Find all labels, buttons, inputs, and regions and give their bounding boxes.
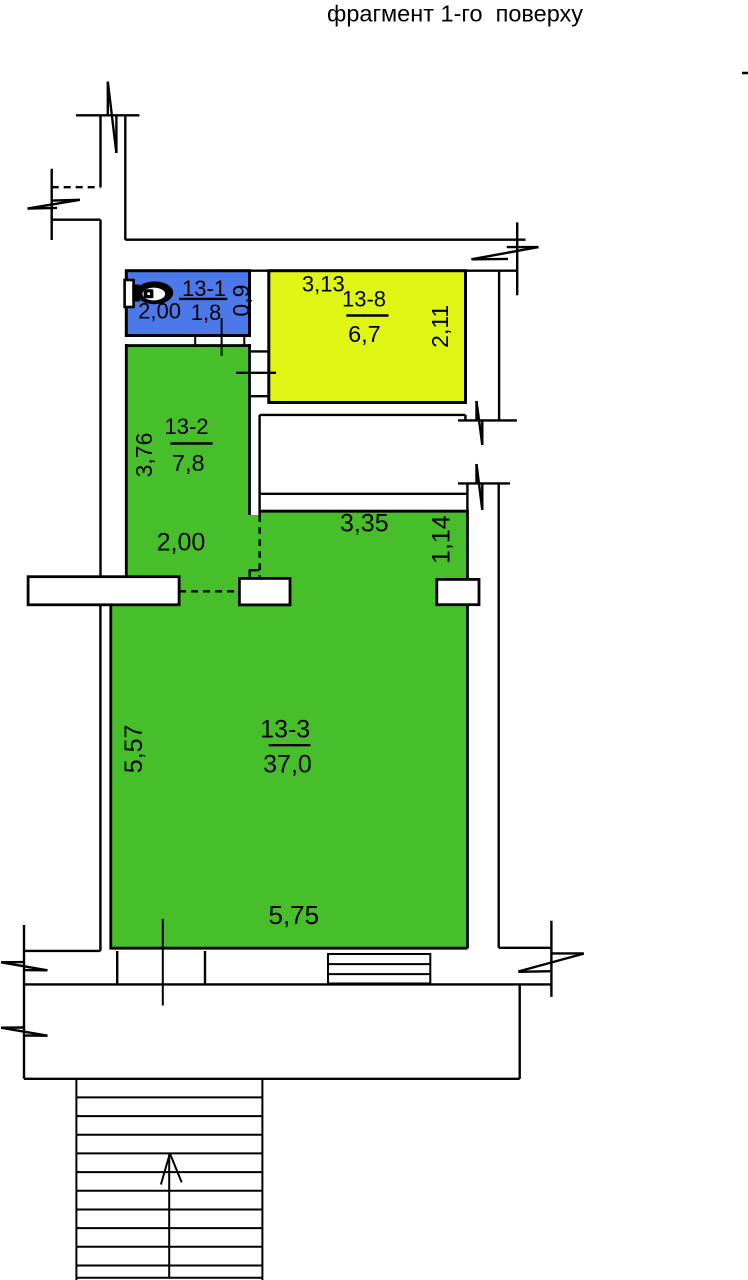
svg-text:5,57: 5,57	[120, 725, 148, 774]
svg-text:5,75: 5,75	[268, 900, 319, 930]
svg-text:13-1: 13-1	[182, 276, 226, 301]
svg-text:3,35: 3,35	[340, 509, 389, 537]
svg-text:2,00: 2,00	[138, 298, 181, 323]
svg-text:0,9: 0,9	[228, 285, 254, 317]
svg-text:1,14: 1,14	[428, 515, 456, 564]
svg-text:13-2: 13-2	[164, 414, 208, 439]
svg-text:3,13: 3,13	[302, 272, 345, 297]
svg-text:13-8: 13-8	[342, 286, 386, 311]
svg-text:1,8: 1,8	[191, 300, 222, 325]
svg-text:фрагмент 1-го поверху: фрагмент 1-го поверху	[327, 1, 583, 27]
svg-text:6,7: 6,7	[348, 321, 381, 347]
svg-text:2,00: 2,00	[157, 529, 206, 557]
svg-text:2,11: 2,11	[427, 305, 453, 348]
svg-text:3,76: 3,76	[131, 433, 157, 478]
svg-text:13-3: 13-3	[260, 715, 310, 743]
svg-text:37,0: 37,0	[263, 751, 312, 779]
svg-text:7,8: 7,8	[172, 450, 205, 476]
